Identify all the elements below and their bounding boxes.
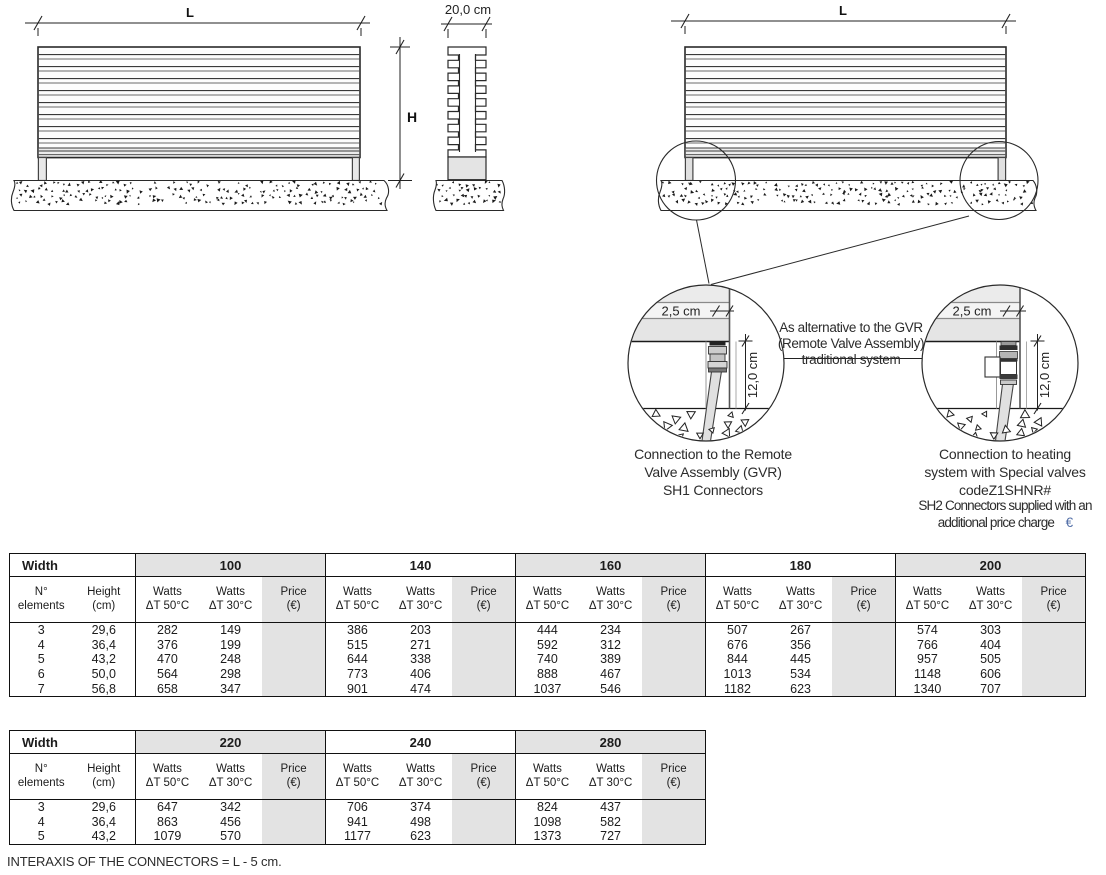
svg-text:12,0 cm: 12,0 cm: [745, 352, 760, 398]
svg-text:2,5 cm: 2,5 cm: [952, 304, 991, 319]
svg-text:L: L: [186, 5, 194, 20]
svg-text:H: H: [407, 109, 417, 125]
svg-text:2,5 cm: 2,5 cm: [661, 304, 700, 319]
svg-text:12,0 cm: 12,0 cm: [1037, 352, 1052, 398]
svg-text:20,0 cm: 20,0 cm: [445, 2, 491, 17]
svg-text:L: L: [839, 3, 847, 18]
